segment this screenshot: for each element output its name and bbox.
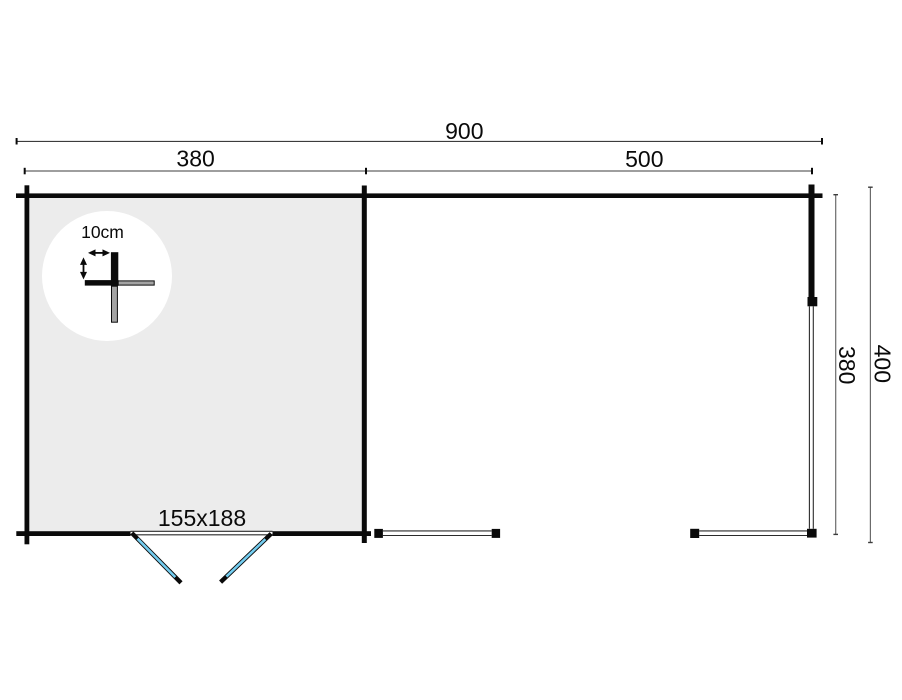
svg-text:400: 400	[870, 345, 896, 383]
svg-text:900: 900	[445, 118, 483, 144]
svg-text:380: 380	[834, 346, 860, 384]
svg-text:500: 500	[625, 146, 663, 172]
svg-text:10cm: 10cm	[81, 222, 124, 242]
svg-text:155x188: 155x188	[158, 505, 246, 531]
svg-text:380: 380	[176, 145, 214, 171]
